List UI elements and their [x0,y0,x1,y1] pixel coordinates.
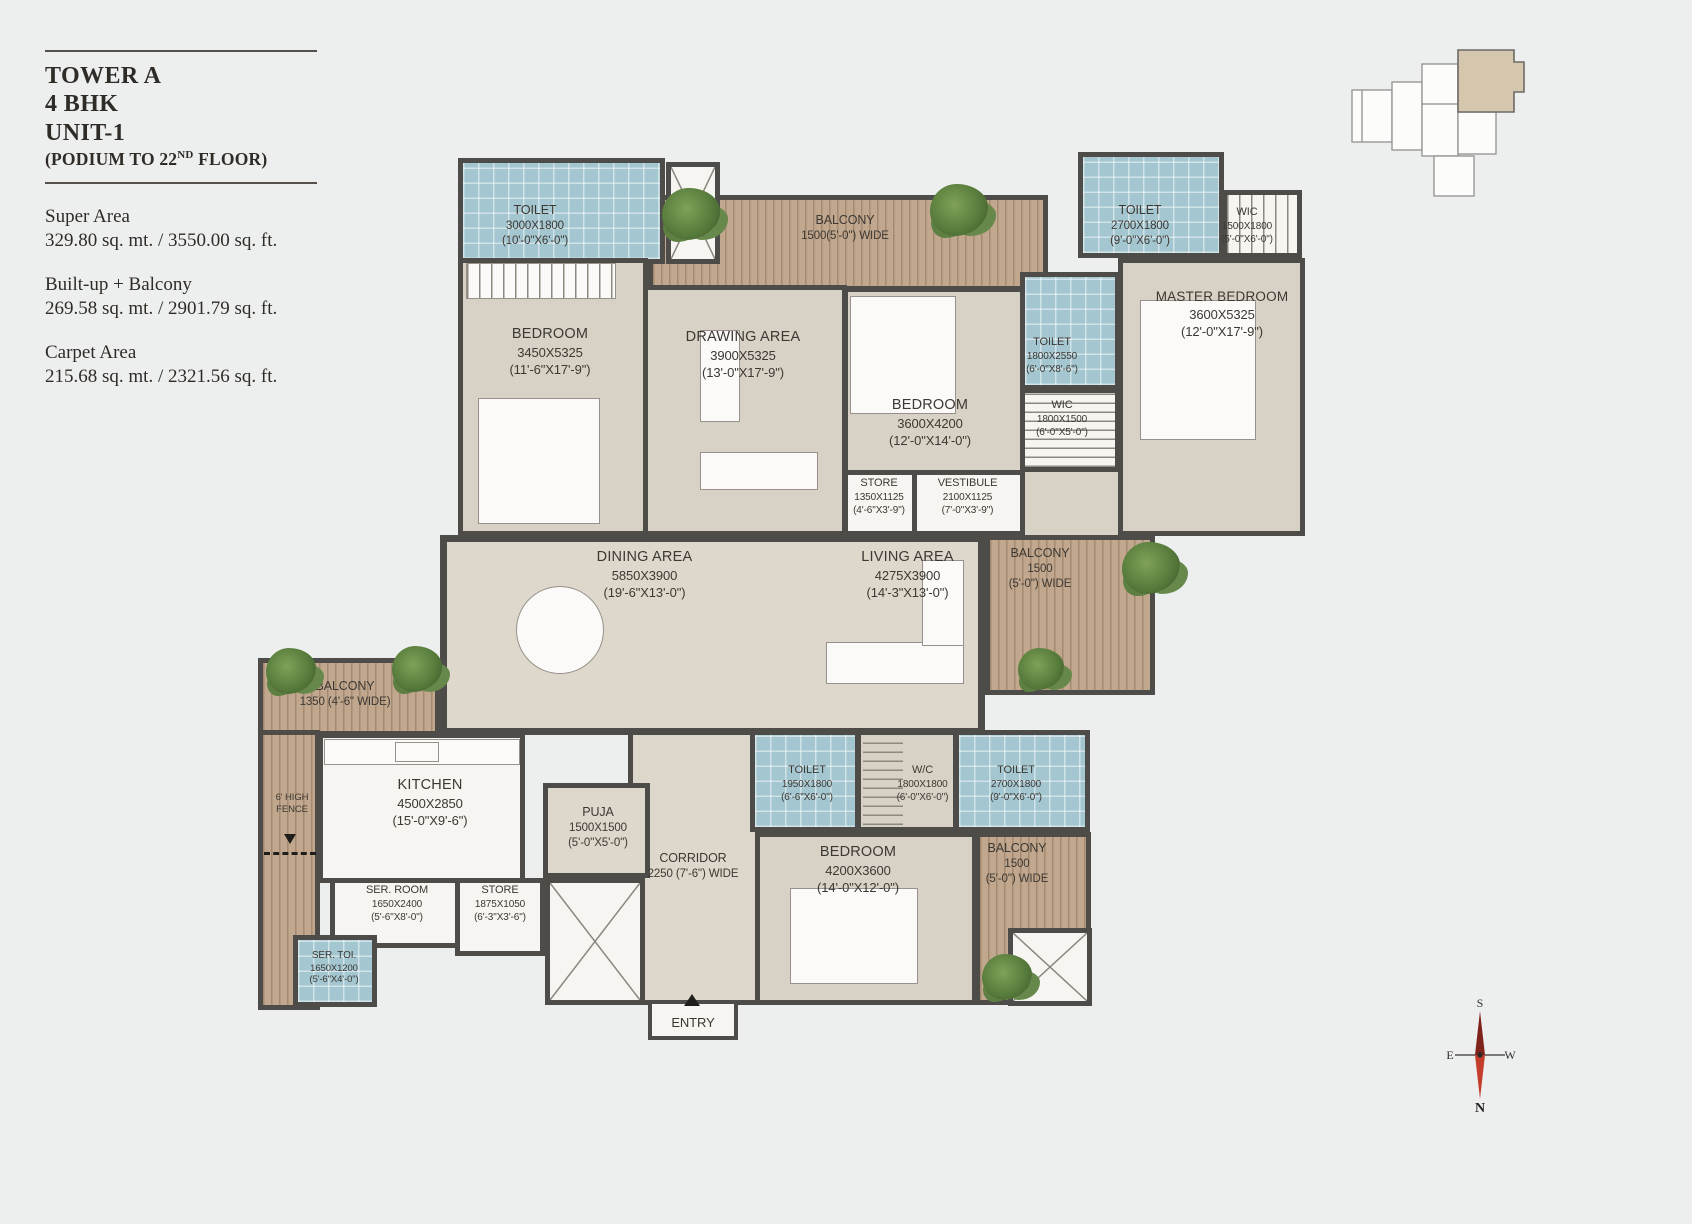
room-name: STORE [450,883,550,898]
key-plan [1348,46,1533,204]
room-dim-mm: 4500X2850 [345,795,515,812]
key-plan-highlighted-unit [1458,50,1524,112]
key-plan-unit-2 [1458,112,1496,154]
room-name: BALCONY [958,840,1076,857]
fence-arrow-icon [284,834,296,844]
room-name: W/C [875,763,970,778]
room-dim-mm: 3450X5325 [470,344,630,361]
room-name: PUJA [543,804,653,821]
room-dim-mm: 1650X2400 [332,898,462,911]
room-name: SER. ROOM [332,883,462,898]
entry-arrow-icon [684,994,700,1006]
room-dim-ft: (5'-0"X5'-0") [543,836,653,851]
room-name: STORE [838,476,920,491]
room-label-balcony-bottom: BALCONY 1500 (5'-0") WIDE [958,840,1076,887]
room-name: BEDROOM [850,396,1010,415]
subtitle-post: FLOOR) [194,149,268,169]
compass-needle-top [1475,1011,1485,1055]
room-name: TOILET [470,202,600,219]
key-plan-core [1422,64,1458,156]
room-dim-ft: (5'-6"X8'-0") [332,911,462,924]
room-label-toilet-2: TOILET 2700X1800 (9'-0"X6'-0") [1075,202,1205,249]
drawing-area-floor [643,285,847,536]
super-area-value: 329.80 sq. mt. / 3550.00 sq. ft. [45,230,317,252]
room-dim-mm: 2250 (7'-6") WIDE [622,867,764,882]
room-dim-ft: (6'-3"X3'-6") [450,911,550,924]
room-dim-mm: 3900X5325 [648,347,838,364]
room-label-balcony-right: BALCONY 1500 (5'-0") WIDE [980,545,1100,592]
room-label-toilet-3: TOILET 1800X2550 (6'-0"X8'-6") [997,335,1107,376]
room-dim-mm: 1650X1200 [288,963,380,975]
room-dim-mm: 1800X1500 [1007,413,1117,426]
room-label-wic-1: WIC 1500X1800 (5'-0"X6'-0") [1197,205,1297,246]
room-name: BALCONY [980,545,1100,562]
compass-north-label: N [1475,1101,1485,1113]
builtup-area-label: Built-up + Balcony [45,274,317,296]
room-label-drawing-area: DRAWING AREA 3900X5325 (13'-0"X17'-9") [648,328,838,381]
room-dim-mm: 1350 (4'-6" WIDE) [260,695,430,710]
room-label-puja: PUJA 1500X1500 (5'-0"X5'-0") [543,804,653,851]
room-name: TOILET [997,335,1107,350]
room-name: TOILET [1075,202,1205,219]
room-label-corridor: CORRIDOR 2250 (7'-6") WIDE [622,850,764,882]
room-name: TOILET [957,763,1075,778]
room-label-bedroom-2: BEDROOM 3600X4200 (12'-0"X14'-0") [850,396,1010,449]
room-dim-mm: 1350X1125 [838,491,920,504]
room-label-bedroom-1: BEDROOM 3450X5325 (11'-6"X17'-9") [470,325,630,378]
room-dim-mm: 1500X1800 [1197,220,1297,233]
plant-icon [1122,542,1180,594]
room-dim-ft: (6'-0"X5'-0") [1007,426,1117,439]
room-name: BALCONY [735,212,955,229]
divider-bottom [45,182,317,184]
floor-subtitle: (PODIUM TO 22ND FLOOR) [45,149,317,170]
room-dim-ft: (19'-6"X13'-0") [552,584,737,601]
room-dim-ft: (9'-0"X6'-0") [1075,234,1205,249]
room-name: VESTIBULE [910,476,1025,491]
room-dim-ft: (6'-0"X6'-0") [875,791,970,804]
room-name: KITCHEN [345,776,515,795]
room-label-store-1: STORE 1350X1125 (4'-6"X3'-9") [838,476,920,517]
super-area-label: Super Area [45,206,317,228]
room-label-toilet-5: TOILET 2700X1800 (9'-0"X6'-0") [957,763,1075,804]
room-dim-mm: 1800X2550 [997,350,1107,363]
room-name: BEDROOM [470,325,630,344]
fence-line-2: FENCE [260,804,324,816]
wardrobe [466,263,616,299]
room-dim-ft: (14'-3"X13'-0") [820,584,995,601]
room-dim-mm: 3600X4200 [850,415,1010,432]
room-dim-ft: (9'-0"X6'-0") [957,791,1075,804]
compass-south-label: S [1477,996,1484,1010]
room-dim-ft: (15'-0"X9'-6") [345,812,515,829]
room-label-dining-area: DINING AREA 5850X3900 (19'-6"X13'-0") [552,548,737,601]
room-dim-mm: 2100X1125 [910,491,1025,504]
room-dim-mm: 1500X1500 [543,821,653,836]
room-dim-ft: (13'-0"X17'-9") [648,364,838,381]
room-dim-mm: 3000X1800 [470,219,600,234]
compass-west-label: W [1504,1048,1516,1062]
fence-dashed-line [264,852,316,855]
room-dim-ft: (5'-0") WIDE [958,872,1076,887]
room-dim-mm: 2700X1800 [1075,219,1205,234]
divider-top [45,50,317,52]
room-label-ser-toi: SER. TOI. 1650X1200 (5'-6"X4'-0") [288,950,380,986]
room-dim-mm: 2700X1800 [957,778,1075,791]
floor-plan-page: { "info": { "title_lines": ["TOWER A", "… [0,0,1692,1224]
room-label-master-bedroom: MASTER BEDROOM 3600X5325 (12'-0"X17'-9") [1132,288,1312,340]
room-dim-ft: (6'-0"X8'-6") [997,363,1107,376]
hob [395,742,439,762]
room-dim-mm: 4200X3600 [773,862,943,879]
room-name: WIC [1007,398,1117,413]
subtitle-sup: ND [177,149,193,161]
room-name: LIVING AREA [820,548,995,567]
compass-hub [1477,1052,1482,1057]
fence-line-1: 6' HIGH [260,792,324,804]
room-dim-mm: 3600X5325 [1132,306,1312,323]
room-dim-mm: 1500 [980,562,1100,577]
bhk-title: 4 BHK [45,90,317,118]
room-dim-ft: (12'-0"X17'-9") [1132,323,1312,340]
room-label-store-2: STORE 1875X1050 (6'-3"X3'-6") [450,883,550,924]
compass-needle-bottom [1475,1055,1485,1099]
room-dim-ft: (7'-0"X3'-9") [910,504,1025,517]
room-label-bedroom-4: BEDROOM 4200X3600 (14'-0"X12'-0") [773,843,943,896]
key-plan-stem [1434,156,1474,196]
key-plan-wing-mid [1392,82,1422,150]
unit-title: UNIT-1 [45,119,317,147]
info-panel: TOWER A 4 BHK UNIT-1 (PODIUM TO 22ND FLO… [45,50,317,388]
shaft-2 [545,878,645,1005]
room-name: CORRIDOR [622,850,764,867]
tower-title: TOWER A [45,62,317,90]
room-label-living-area: LIVING AREA 4275X3900 (14'-3"X13'-0") [820,548,995,601]
room-dim-ft: (5'-0") WIDE [980,577,1100,592]
room-dim-mm: 1500(5'-0") WIDE [735,229,955,244]
entry-label: ENTRY [648,1014,738,1031]
room-dim-mm: 5850X3900 [552,567,737,584]
room-label-wic-2: WIC 1800X1500 (6'-0"X5'-0") [1007,398,1117,439]
compass: S E W N [1443,995,1517,1113]
room-dim-ft: (12'-0"X14'-0") [850,432,1010,449]
room-label-toilet-4: TOILET 1950X1800 (6'-6"X6'-0") [752,763,862,804]
room-label-toilet-1: TOILET 3000X1800 (10'-0"X6'-0") [470,202,600,249]
room-dim-mm: 1875X1050 [450,898,550,911]
room-label-fence: 6' HIGH FENCE [260,792,324,816]
room-dim-mm: 4275X3900 [820,567,995,584]
room-dim-ft: (5'-6"X4'-0") [288,974,380,986]
master-entry-floor [1022,465,1122,540]
room-name: MASTER BEDROOM [1132,288,1312,306]
room-dim-ft: (4'-6"X3'-9") [838,504,920,517]
room-dim-ft: (6'-6"X6'-0") [752,791,862,804]
room-dim-ft: (5'-0"X6'-0") [1197,233,1297,246]
room-label-ser-room: SER. ROOM 1650X2400 (5'-6"X8'-0") [332,883,462,924]
shaft-2-cross [550,883,640,1000]
room-label-kitchen: KITCHEN 4500X2850 (15'-0"X9'-6") [345,776,515,829]
room-name: DINING AREA [552,548,737,567]
room-dim-mm: 1800X1800 [875,778,970,791]
carpet-area-value: 215.68 sq. mt. / 2321.56 sq. ft. [45,366,317,388]
bed [790,888,918,984]
room-name: SER. TOI. [288,950,380,963]
room-label-balcony-top: BALCONY 1500(5'-0") WIDE [735,212,955,244]
room-dim-mm: 1500 [958,857,1076,872]
room-dim-ft: (11'-6"X17'-9") [470,361,630,378]
sofa [826,642,964,684]
bed [478,398,600,524]
sofa [700,452,818,490]
room-name: DRAWING AREA [648,328,838,347]
room-dim-mm: 1950X1800 [752,778,862,791]
builtup-area-value: 269.58 sq. mt. / 2901.79 sq. ft. [45,298,317,320]
subtitle-pre: (PODIUM TO 22 [45,149,177,169]
compass-east-label: E [1446,1048,1453,1062]
room-name: WIC [1197,205,1297,220]
room-name: BEDROOM [773,843,943,862]
key-plan-wing-left [1352,90,1392,142]
room-label-vestibule: VESTIBULE 2100X1125 (7'-0"X3'-9") [910,476,1025,517]
carpet-area-label: Carpet Area [45,342,317,364]
room-label-wc: W/C 1800X1800 (6'-0"X6'-0") [875,763,970,804]
room-dim-ft: (10'-0"X6'-0") [470,234,600,249]
room-name: TOILET [752,763,862,778]
room-dim-ft: (14'-0"X12'-0") [773,879,943,896]
